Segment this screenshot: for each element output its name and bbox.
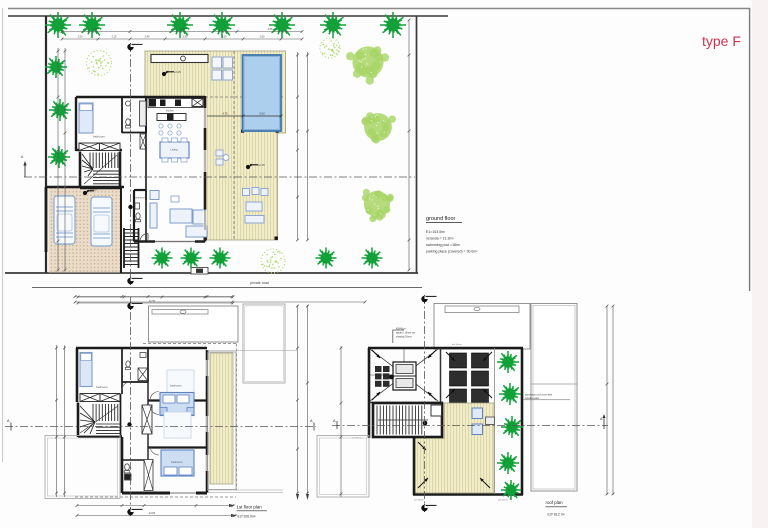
svg-text:+0.15: +0.15: [174, 70, 181, 74]
svg-text:Living: Living: [170, 148, 178, 152]
svg-text:wooden slats: wooden slats: [525, 397, 540, 400]
svg-text:+0.15: +0.15: [258, 163, 265, 167]
svg-text:parking place (covered) = 30.: parking place (covered) = 30.0m²: [426, 250, 478, 254]
svg-text:dm 90mm: dm 90mm: [452, 344, 462, 346]
svg-text:2.60: 2.60: [260, 36, 265, 39]
svg-text:roof plan: roof plan: [546, 500, 564, 505]
svg-text:2.90: 2.90: [183, 36, 188, 39]
svg-text:bedroom: bedroom: [171, 460, 183, 464]
svg-text:dm 90mm: dm 90mm: [414, 500, 424, 502]
svg-text:2.40: 2.40: [145, 36, 150, 39]
svg-text:kitchen: kitchen: [166, 109, 175, 113]
svg-text:1.50: 1.50: [78, 36, 83, 39]
svg-text:5.30: 5.30: [181, 28, 186, 31]
svg-text:3.25: 3.25: [268, 28, 273, 31]
svg-text:5.00: 5.00: [259, 112, 265, 116]
svg-text:12.80: 12.80: [149, 512, 156, 515]
svg-text:2.50: 2.50: [222, 36, 227, 39]
svg-text:4.20: 4.20: [93, 28, 98, 31]
svg-text:swimming pool =18m²: swimming pool =18m²: [426, 243, 461, 247]
svg-text:bedroom: bedroom: [93, 135, 105, 139]
svg-text:E1=103.5m²: E1=103.5m²: [426, 230, 446, 234]
svg-text:apiary / 10mm var: apiary / 10mm var: [396, 332, 415, 335]
svg-text:veranda = 21.3m²: veranda = 21.3m²: [426, 237, 454, 241]
svg-text:shading 20mm: shading 20mm: [396, 336, 412, 339]
svg-text:private road: private road: [250, 281, 269, 285]
svg-text:ground floor: ground floor: [426, 216, 456, 222]
svg-text:12.50: 12.50: [149, 300, 156, 303]
svg-text:type F: type F: [702, 33, 741, 49]
svg-text:bedroom: bedroom: [170, 384, 182, 388]
svg-text:2.10: 2.10: [112, 36, 117, 39]
svg-text:1st floor plan: 1st floor plan: [237, 504, 263, 509]
svg-text:E2=106.0m²: E2=106.0m²: [238, 514, 257, 518]
svg-text:dm 90mm: dm 90mm: [498, 500, 508, 502]
svg-text:4.75: 4.75: [222, 112, 228, 116]
svg-text:entrance: entrance: [135, 197, 145, 200]
svg-text:bedroom: bedroom: [96, 385, 108, 389]
svg-text:E3=16.2 m²: E3=16.2 m²: [548, 512, 566, 516]
